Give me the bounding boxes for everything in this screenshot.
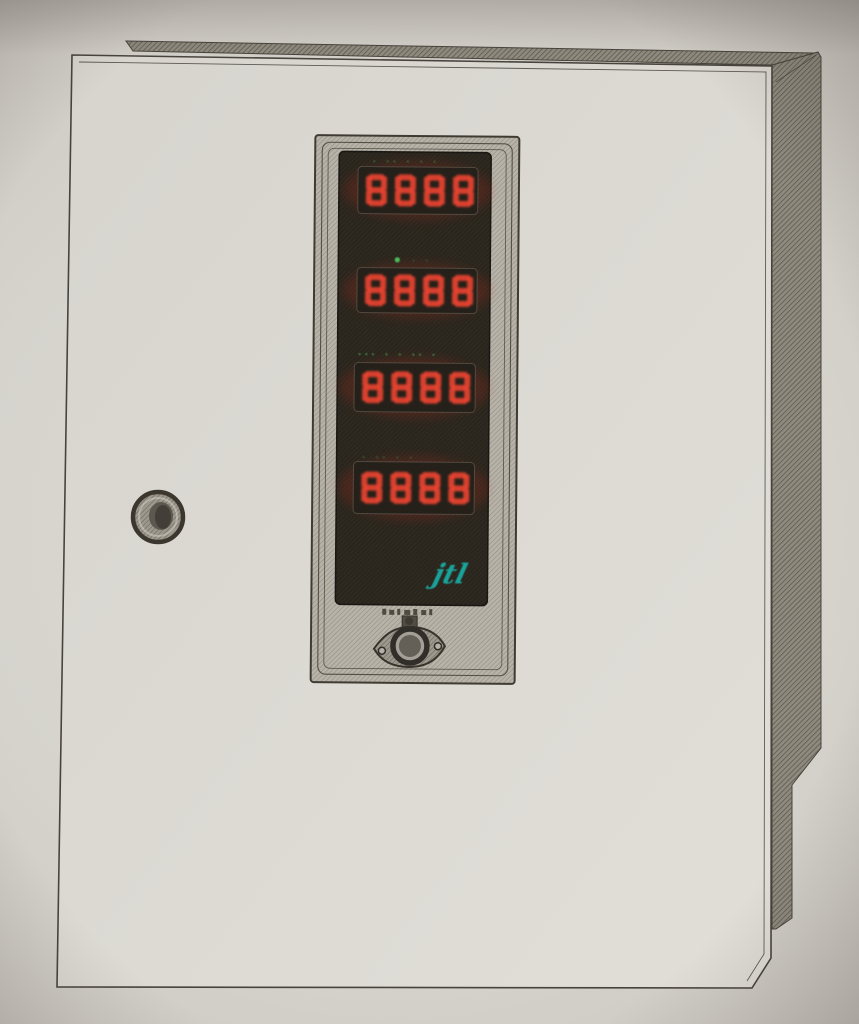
paper-grain — [0, 0, 859, 1024]
figure: ∙ ∙∙ ∙ ∙ ∙ ∙ ∙ ∙∙∙ ∙ ∙ ∙∙ ∙ ∙ ∙∙ ∙ ∙ jtl — [0, 0, 859, 1024]
photo-of-printed-figure: ∙ ∙∙ ∙ ∙ ∙ ∙ ∙ ∙∙∙ ∙ ∙ ∙∙ ∙ ∙ ∙∙ ∙ ∙ jtl — [0, 0, 859, 1024]
